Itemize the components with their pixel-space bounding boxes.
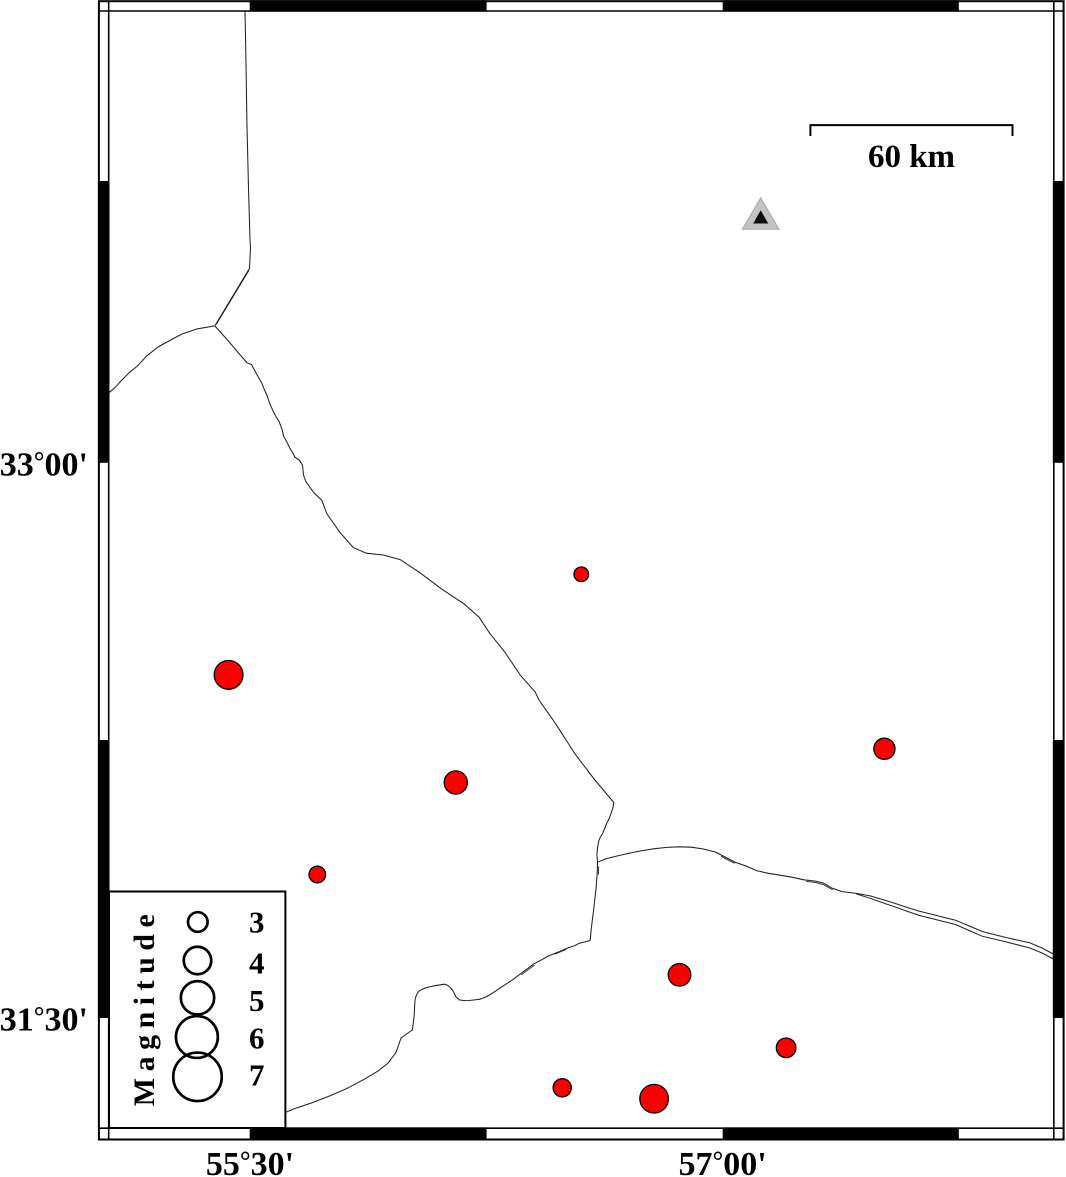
svg-text:33°00': 33°00' (0, 446, 88, 483)
svg-text:5: 5 (249, 983, 265, 1018)
svg-text:60 km: 60 km (868, 139, 955, 175)
svg-text:3: 3 (249, 904, 265, 939)
svg-text:55°30': 55°30' (206, 1146, 294, 1177)
svg-text:6: 6 (249, 1021, 265, 1056)
svg-text:57°00': 57°00' (678, 1146, 766, 1177)
svg-text:7: 7 (249, 1058, 265, 1093)
svg-text:Magnitude: Magnitude (128, 908, 161, 1107)
svg-text:4: 4 (249, 946, 265, 981)
svg-text:31°30': 31°30' (0, 1001, 88, 1038)
